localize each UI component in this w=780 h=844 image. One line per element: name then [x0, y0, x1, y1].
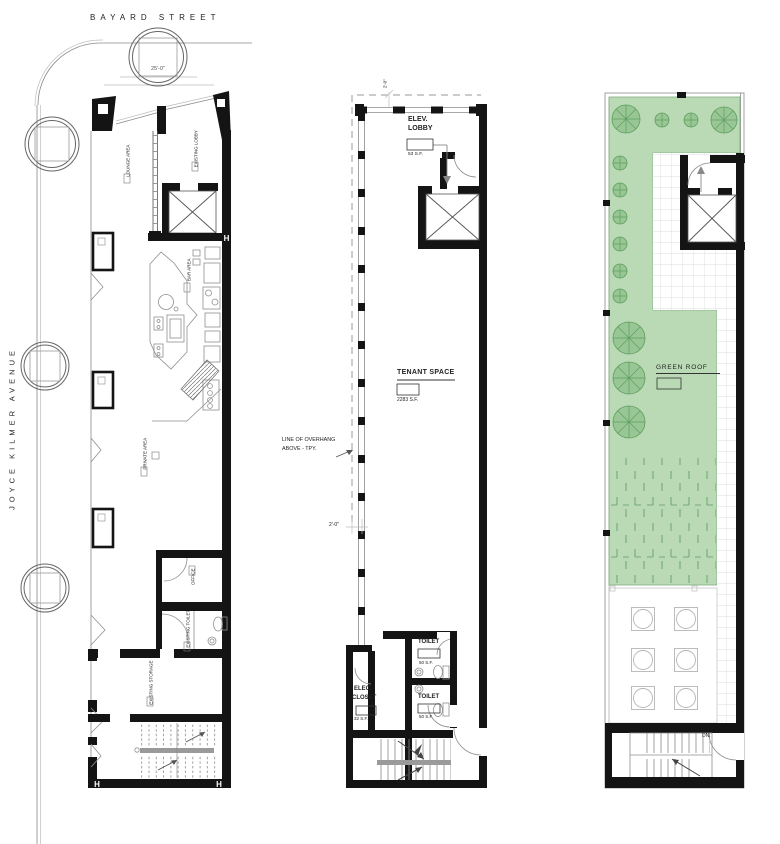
overhang-note-line2: ABOVE - TPY. — [282, 446, 317, 452]
green-roof-name: GREEN ROOF — [656, 364, 720, 374]
elev-lobby-area: 53 S.F. — [408, 152, 423, 158]
planting-rows — [611, 458, 716, 584]
overhang-note-line1: LINE OF OVERHANG — [282, 437, 335, 443]
room-label-existing-toilet: EXISTING TOILET — [185, 609, 190, 649]
toilet1-name: TOILET — [418, 639, 439, 646]
elevator-shaft — [162, 183, 231, 241]
ground-floor-plan: H H H — [88, 91, 231, 789]
roof-plan — [603, 92, 745, 788]
column-mark: H — [94, 780, 100, 789]
tenant-space-name: TENANT SPACE — [397, 369, 455, 377]
drawing-canvas: H H H — [0, 0, 780, 844]
toilet2-name: TOILET — [418, 694, 439, 701]
toilet2-area: 50 S.F. — [419, 714, 433, 719]
glazed-partition — [149, 131, 161, 241]
stair-tenant — [377, 739, 451, 780]
elevator-shaft — [418, 186, 487, 249]
tenant-floor-plan — [336, 90, 487, 788]
overhang-line — [352, 95, 481, 522]
overhang-offset-dimension: 2'-0" — [329, 522, 339, 528]
south-wall — [88, 779, 231, 788]
street-tree — [21, 342, 69, 390]
skylights — [632, 608, 698, 710]
elev-lobby-name-line1: ELEV. — [408, 116, 428, 124]
room-label-lounge-area: LOUNGE AREA — [125, 141, 130, 181]
street-tree — [21, 564, 69, 612]
street-name-left: JOYCE KILMER AVENUE — [8, 329, 17, 529]
down-stair-label: DN. — [702, 733, 711, 739]
room-label-bar-area: BAR AREA — [186, 250, 191, 290]
elec-closet-area: 32 S.F. — [354, 716, 368, 721]
tenant-space-area: 2283 S.F. — [397, 397, 418, 403]
column-mark: H — [224, 234, 230, 243]
room-label-existing-lobby: EXISTING LOBBY — [193, 129, 198, 169]
street-tree — [25, 117, 79, 171]
stair-ground — [135, 723, 217, 778]
column-mark: H — [216, 780, 222, 789]
stair-roof — [630, 733, 712, 778]
curb-dimension: 25'-0" — [140, 66, 176, 73]
architectural-drawing-sheet: H H H — [0, 0, 780, 844]
elevator-penthouse — [680, 155, 745, 250]
elev-lobby-name-line2: LOBBY — [408, 125, 433, 133]
elec-closet-name-line2: CLOSET — [352, 695, 376, 702]
elec-closet-name-line1: ELEC. — [354, 686, 372, 693]
room-label-private-area: PRIVATE AREA — [142, 434, 147, 474]
room-label-existing-storage: EXISTING STORAGE — [148, 665, 153, 705]
top-offset-dimension: 2'-0" — [382, 72, 387, 96]
east-wall — [222, 130, 231, 780]
street-name-top: BAYARD STREET — [90, 13, 220, 23]
elevator-lobby — [433, 145, 476, 189]
room-label-office: OFFICE — [190, 557, 195, 597]
toilet1-area: 50 S.F. — [419, 660, 433, 665]
